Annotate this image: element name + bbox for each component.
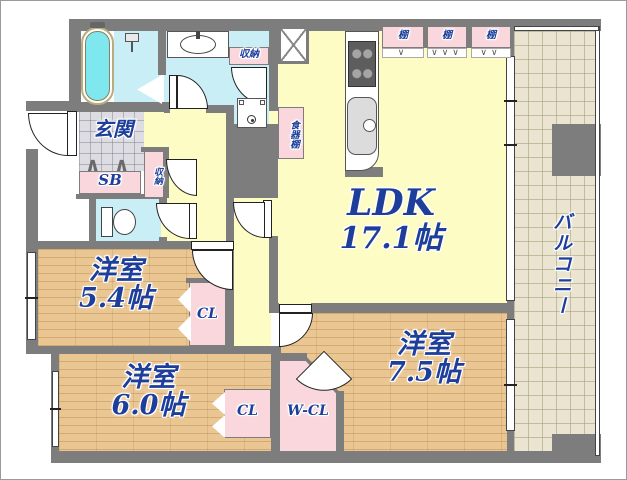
bedroom3-name: 洋室 [344, 331, 504, 359]
pipe-space-box [278, 26, 309, 64]
wall-left-entrance [26, 149, 38, 249]
window-tick [25, 297, 38, 299]
wall-bath-bottom [69, 102, 169, 112]
bedroom2-label: 洋室 6.0帖 [71, 364, 226, 421]
entrance-step-icon: ∧ [114, 157, 129, 173]
window-tick [504, 144, 517, 146]
ldk-name: LDK [301, 185, 481, 223]
floor-plan: SB 収納 収納 食器棚 CL CL W-CL 棚 棚 棚 ∨ ∨∨∨ ∨∨ [0, 0, 627, 480]
shelf-1-label: 棚 [382, 31, 424, 42]
window-bedroom3-balcony [506, 319, 515, 431]
shower-mixer-icon [125, 33, 139, 42]
entrance-step-icon: ∧ [85, 157, 100, 173]
shelf-3-label: 棚 [471, 31, 511, 42]
window-bedroom1 [27, 252, 36, 340]
bedroom3-area: 7.5帖 [344, 359, 504, 387]
balcony-railing-top [514, 26, 599, 31]
wall-bath-divider [158, 31, 166, 75]
walk-in-closet-label: W-CL [277, 404, 339, 419]
shower-pipe-icon [131, 42, 133, 52]
toilet-bowl [113, 209, 136, 235]
storage-washroom-label: 収納 [229, 50, 269, 61]
window-tick [50, 408, 61, 410]
wall-balcony-block-upper [552, 124, 601, 176]
storage-entrance-label: 収納 [147, 157, 161, 195]
window-tick [504, 100, 517, 102]
washer-pan-corner [239, 100, 244, 105]
washroom-door-leaf [169, 75, 177, 109]
shelf-2-label: 棚 [427, 31, 467, 42]
bedroom3-label: 洋室 7.5帖 [344, 331, 504, 388]
ldk-label: LDK 17.1帖 [301, 185, 481, 254]
wall-ldk-bedroom3-b [311, 303, 514, 313]
wall-hall-ldk [269, 236, 278, 313]
bathtub-water [85, 31, 110, 101]
balcony-railing [595, 26, 600, 456]
wall-core-block [226, 124, 278, 198]
folding-door-icon: ∨ [382, 48, 424, 58]
bedroom1-area: 5.4帖 [41, 285, 191, 313]
wall-bedroom1-2-divider [26, 346, 281, 354]
wall-left-upper [69, 19, 81, 111]
folding-door-icon: ∨∨∨ [427, 48, 467, 58]
wall-balcony-block-lower [552, 434, 601, 463]
kitchen-faucet-icon [363, 119, 376, 132]
bedroom2-area: 6.0帖 [71, 392, 226, 420]
folding-door-icon: ∨∨ [471, 48, 511, 58]
toilet-tank [101, 207, 113, 237]
bedroom3-door-leaf [279, 304, 312, 313]
wall-toilet-right-stub-b [159, 237, 167, 247]
wall-ldk-bedroom3-a [269, 303, 279, 313]
window-ldk-balcony [506, 56, 515, 301]
window-tick [504, 384, 517, 386]
bedroom1-label: 洋室 5.4帖 [41, 257, 191, 314]
entrance-door-leaf [67, 111, 77, 156]
stove [348, 41, 376, 87]
wall-toilet-left [89, 197, 96, 247]
wall-washroom-bottom-b [206, 105, 234, 113]
washer-drain-dot [251, 119, 254, 122]
bedroom2-name: 洋室 [71, 364, 226, 392]
entrance-label: 玄関 [84, 119, 142, 140]
bedroom1-door-leaf [191, 241, 234, 250]
closet-bedroom1-label: CL [189, 307, 226, 322]
bedroom1-name: 洋室 [41, 257, 191, 285]
closet-bedroom2-label: CL [224, 404, 271, 419]
toilet-door-leaf [189, 203, 197, 239]
ldk-area: 17.1帖 [301, 223, 481, 255]
washer-pan-corner [260, 100, 265, 105]
washbasin-faucet-icon [196, 31, 200, 39]
balcony-label: バルコニー [544, 189, 570, 339]
wall-toilet-bottom [89, 241, 191, 249]
dish-cabinet-label: 食器棚 [284, 111, 298, 157]
wall-washroom-right [269, 26, 278, 111]
bathtub-faucet-icon [90, 22, 105, 28]
